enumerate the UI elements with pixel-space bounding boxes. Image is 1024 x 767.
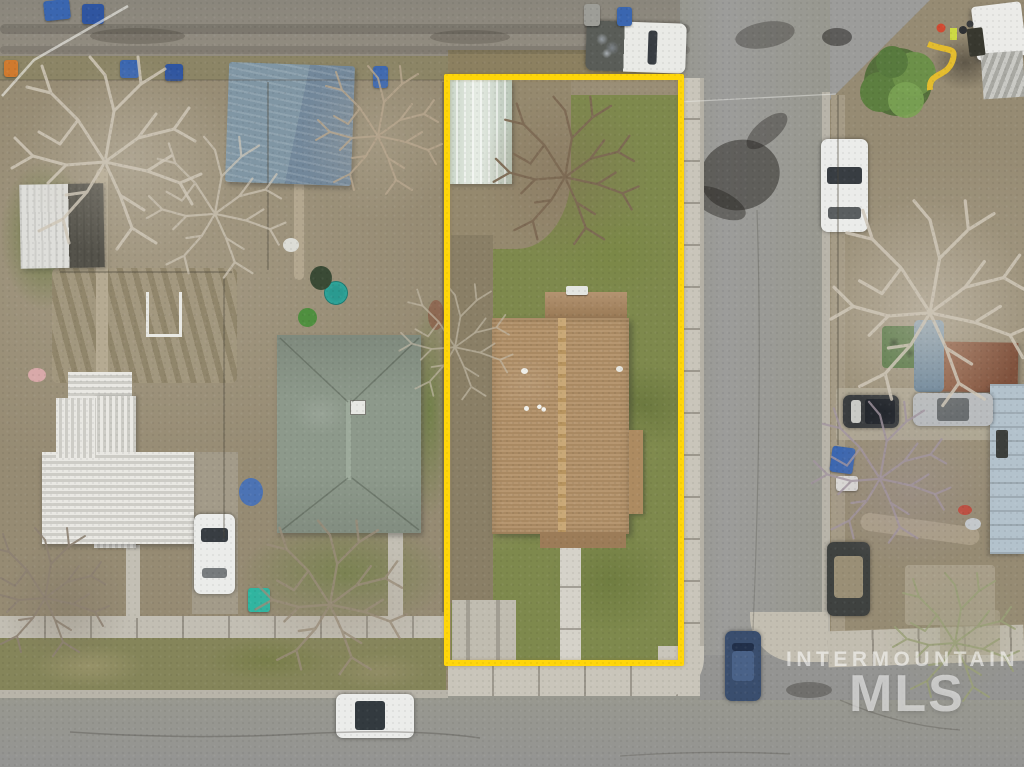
property-boundary-outline bbox=[444, 74, 684, 666]
green-round-object bbox=[298, 308, 317, 327]
tree-canopy-haze bbox=[300, 60, 460, 220]
gray-bin bbox=[584, 4, 600, 26]
white-work-van bbox=[585, 20, 687, 73]
car-roof bbox=[732, 651, 754, 681]
cabin-glass bbox=[355, 701, 385, 730]
blue-tarp bbox=[239, 478, 263, 506]
satellite-dish bbox=[283, 238, 299, 252]
east-curb bbox=[700, 78, 704, 660]
white-garden-frame bbox=[146, 292, 182, 337]
pink-object bbox=[28, 368, 46, 382]
tree-canopy-haze bbox=[820, 410, 1000, 570]
metal-roof-corner bbox=[980, 51, 1024, 100]
blue-bin bbox=[82, 4, 104, 24]
white-car-south bbox=[336, 694, 414, 738]
aerial-photo: INTERMOUNTAIN MLS bbox=[0, 0, 1024, 767]
dark-mark bbox=[786, 682, 832, 698]
alley-dirt-patch bbox=[430, 30, 510, 44]
tree-canopy-haze bbox=[20, 60, 240, 260]
dark-window-bits bbox=[996, 430, 1008, 458]
dark-green-object bbox=[310, 266, 332, 290]
blue-bin bbox=[43, 0, 71, 21]
safety-cone bbox=[937, 24, 946, 33]
rust-bricks bbox=[428, 300, 444, 330]
van-windshield bbox=[647, 30, 657, 64]
east-street-top-fork bbox=[830, 0, 930, 100]
white-house-wing bbox=[42, 452, 194, 544]
tree-canopy-haze bbox=[0, 540, 130, 670]
rear-window bbox=[828, 207, 861, 219]
dark-mark bbox=[822, 28, 852, 46]
windshield bbox=[732, 643, 754, 651]
chimney bbox=[350, 400, 366, 415]
orange-bin bbox=[4, 60, 18, 77]
tree-canopy-haze bbox=[820, 200, 1024, 420]
rear-window bbox=[202, 568, 227, 578]
alley-dirt-patch bbox=[90, 28, 185, 44]
suv-roof bbox=[834, 556, 863, 598]
watermark-line2: MLS bbox=[849, 664, 965, 724]
windshield bbox=[201, 528, 228, 542]
pickup-glass bbox=[851, 400, 861, 423]
blue-bin bbox=[617, 7, 632, 26]
white-driveway-car bbox=[194, 514, 235, 594]
tree-canopy-haze bbox=[240, 540, 440, 660]
garden-rows bbox=[52, 268, 237, 383]
windshield bbox=[827, 167, 862, 184]
blue-car bbox=[725, 631, 761, 701]
van-cargo-items bbox=[594, 31, 621, 60]
truck-open-side bbox=[966, 27, 985, 57]
white-house-wing bbox=[56, 398, 96, 458]
white-parked-car bbox=[821, 139, 868, 232]
